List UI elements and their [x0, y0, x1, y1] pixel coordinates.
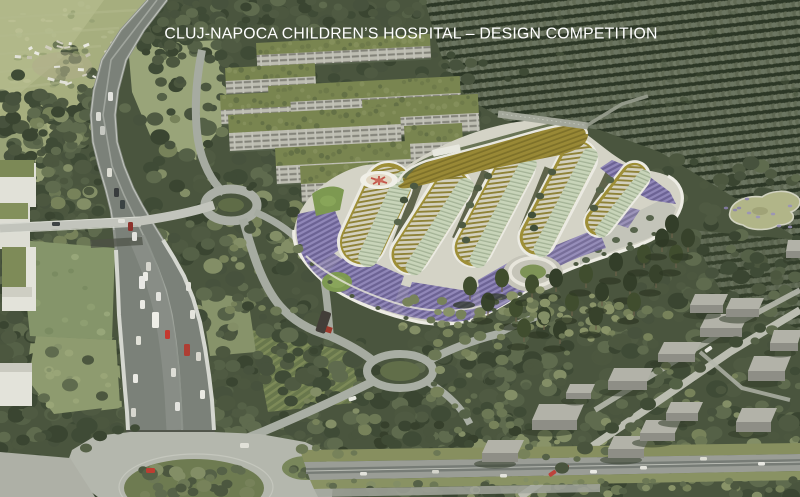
svg-text:CLUJ-NAPOCA CHILDREN’S HOSPITA: CLUJ-NAPOCA CHILDREN’S HOSPITAL – DESIGN… — [164, 26, 657, 43]
